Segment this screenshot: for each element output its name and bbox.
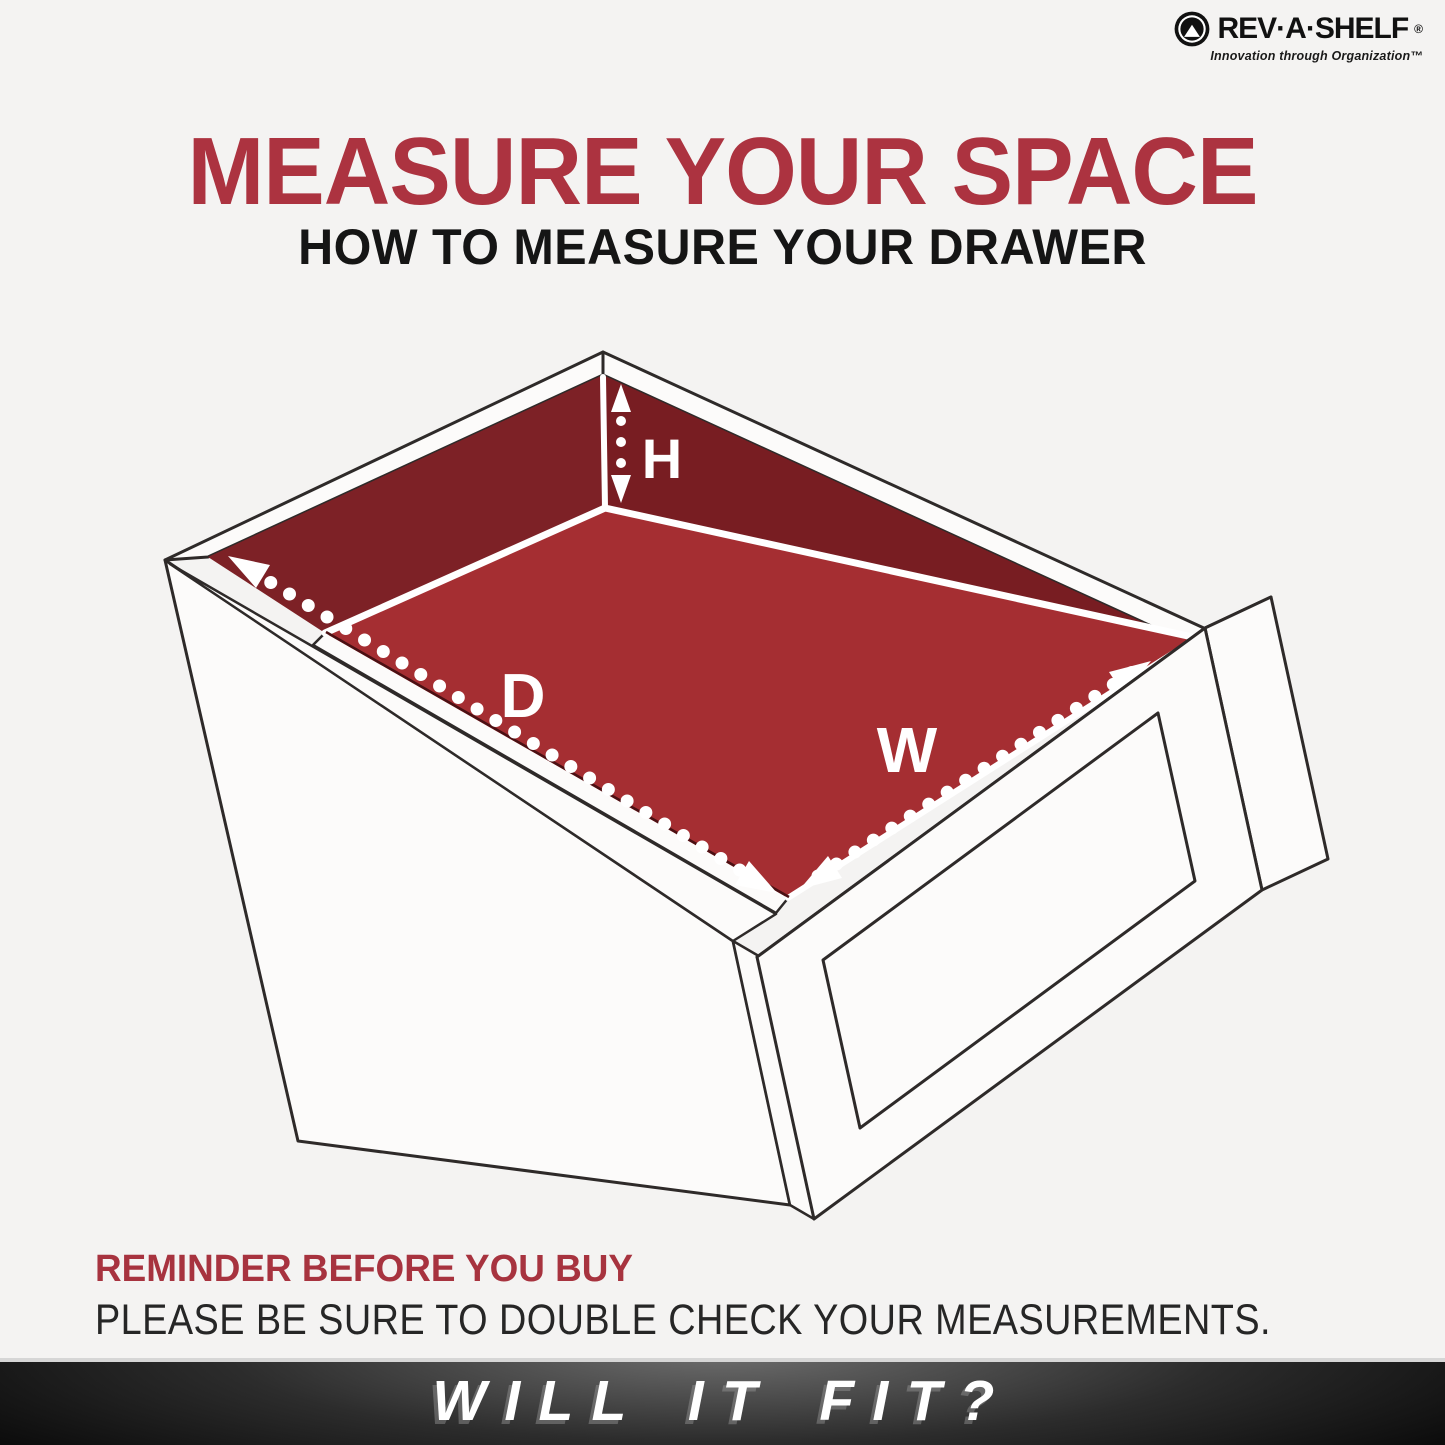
reminder-body: PLEASE BE SURE TO DOUBLE CHECK YOUR MEAS… [95,1299,1271,1342]
height-label: H [642,427,682,490]
infographic-page: REV·A·SHELF® Innovation through Organiza… [0,0,1445,1445]
reminder-heading: REMINDER BEFORE YOU BUY [95,1250,633,1288]
drawer-measurement-diagram: H D W [0,0,1445,1445]
will-it-fit-banner: WILL IT FIT? [0,1358,1445,1445]
width-label: W [877,714,938,786]
corner-junction-line [603,377,605,508]
banner-text: WILL IT FIT? [432,1373,1012,1430]
depth-label: D [501,662,546,731]
